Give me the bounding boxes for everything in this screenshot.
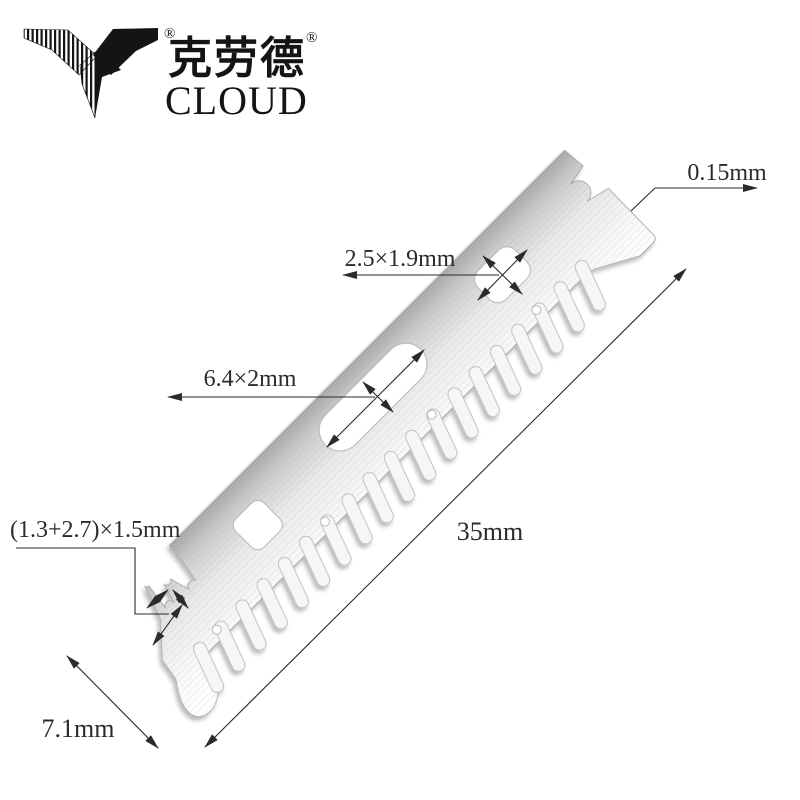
blade-technical-diagram: ® 克劳德 ® CLOUD (0, 0, 800, 800)
dim-end-notch-leader (16, 548, 169, 614)
blade-brushed-texture (96, 147, 671, 722)
dim-thickness-leader (631, 188, 757, 211)
dim-thickness-label: 0.15mm (687, 160, 767, 186)
bird-logo-icon (24, 28, 158, 118)
dim-thickness: 0.15mm (631, 160, 767, 211)
brand-name-cn: 克劳德 (168, 34, 306, 83)
brand-name-en: CLOUD (165, 78, 308, 123)
dim-center-slot-label: 6.4×2mm (204, 366, 297, 392)
dim-width: 7.1mm (42, 656, 158, 748)
brand-logo: ® 克劳德 ® CLOUD (24, 26, 317, 123)
dim-coupling-hole-label: 2.5×1.9mm (345, 246, 456, 272)
blade-illustration (96, 147, 671, 722)
dim-length-label: 35mm (457, 517, 523, 546)
dim-width-label: 7.1mm (42, 714, 115, 743)
registered-mark-text-icon: ® (306, 30, 317, 46)
product-diagram-page: ® 克劳德 ® CLOUD (0, 0, 800, 800)
dim-end-notch-label: (1.3+2.7)×1.5mm (10, 517, 181, 543)
